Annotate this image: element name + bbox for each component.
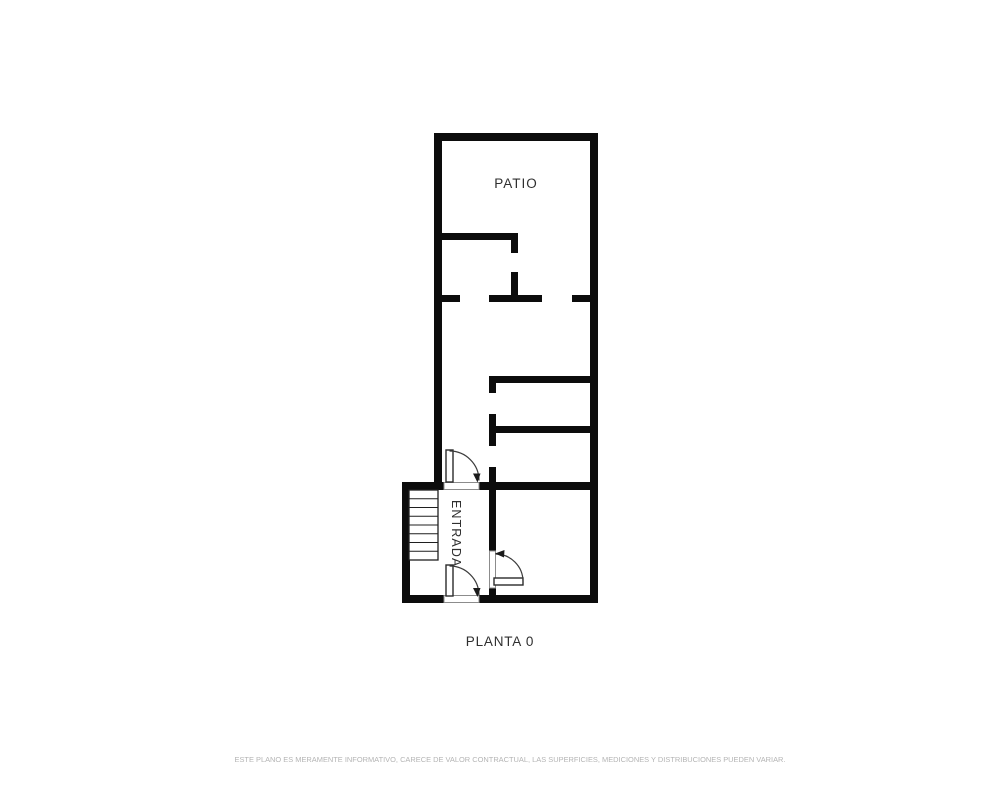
entrada-label: ENTRADA: [449, 500, 463, 567]
door-corridor: [444, 450, 481, 490]
patio-dividing-wall: [434, 233, 518, 240]
door-right-room-leaf: [494, 578, 523, 585]
right-room-wall-upper: [489, 376, 590, 383]
door-corridor-sill: [444, 483, 479, 490]
right-wall: [590, 133, 598, 603]
right-room-wall-upper-stub: [489, 376, 496, 393]
cross-wall-left-segment: [434, 295, 460, 302]
entrada-divider-wall-upper: [489, 467, 496, 551]
entrance-top-wall-left: [402, 482, 444, 490]
cross-wall-mid-segment: [489, 295, 542, 302]
staircase: [409, 490, 438, 560]
door-entrance-leaf: [446, 565, 453, 596]
top-wall: [434, 133, 598, 141]
entrada-divider-wall-lower: [489, 588, 496, 602]
upper-left-wall: [434, 133, 442, 490]
right-room-wall-lower-stub: [489, 414, 496, 446]
door-entrance: [444, 565, 481, 603]
patio-label: PATIO: [494, 176, 538, 191]
bottom-wall-left: [402, 595, 444, 603]
door-right-room-arrow: [495, 550, 505, 558]
floor-plan-svg: PATIO ENTRADA PLANTA 0 ESTE PLANO ES MER…: [0, 0, 1000, 800]
floor-plan-page: PATIO ENTRADA PLANTA 0 ESTE PLANO ES MER…: [0, 0, 1000, 800]
right-room-wall-lower: [489, 426, 590, 433]
door-right-room: [490, 550, 524, 588]
disclaimer-text: ESTE PLANO ES MERAMENTE INFORMATIVO, CAR…: [235, 755, 786, 764]
bottom-wall-right: [479, 595, 598, 603]
plan-title: PLANTA 0: [466, 634, 534, 649]
patio-divider-stub-upper: [511, 233, 518, 253]
cross-wall-right-segment: [572, 295, 598, 302]
door-corridor-leaf: [446, 450, 453, 482]
